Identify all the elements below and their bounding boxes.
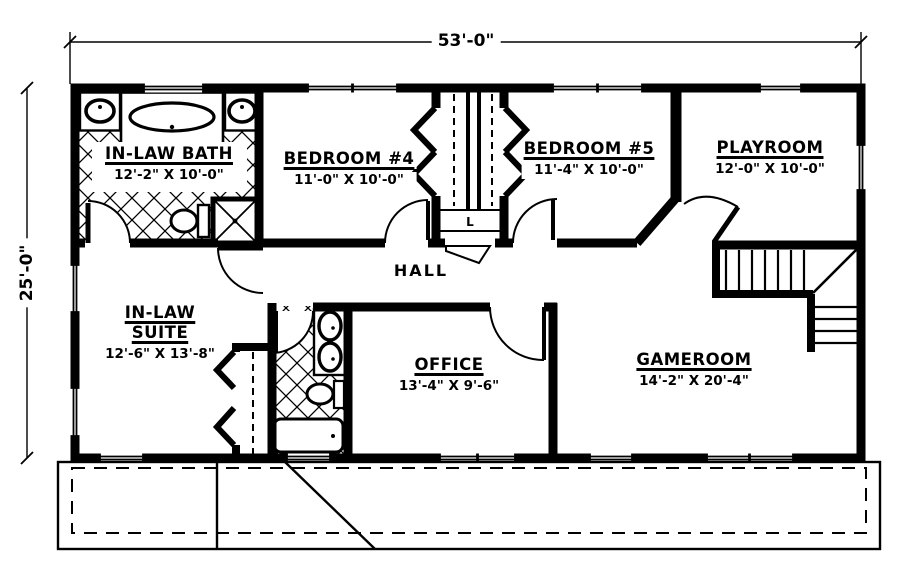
stair-treads-lower <box>815 307 857 343</box>
sink-icon <box>319 343 341 371</box>
bedroom4-door-arc <box>385 200 428 243</box>
overall-width-dimension: 53'-0" <box>432 31 501 51</box>
toilet-tank <box>198 205 209 237</box>
playroom-door-arc <box>684 197 738 207</box>
bedroom5-angled-wall <box>637 198 676 243</box>
room-dims: 11'-4" X 10'-0" <box>522 162 657 179</box>
sink-icon <box>86 100 114 122</box>
room-name: IN-LAW SUITE <box>103 303 217 343</box>
room-name: IN-LAW BATH <box>103 144 235 164</box>
room-label-playroom: PLAYROOM 12'-0" X 10'-0" <box>713 138 827 178</box>
floor-plan-page: 53'-0" 25'-0" IN-LAW BATH 12'-2" X 10'-0… <box>0 0 900 578</box>
room-dims: 13'-4" X 9'-6" <box>397 378 501 395</box>
deck-dashed-line <box>72 468 866 533</box>
bedroom4-closet-bifold <box>414 108 435 152</box>
room-label-office: OFFICE 13'-4" X 9'-6" <box>397 355 501 395</box>
office-door-arc <box>490 307 544 360</box>
room-label-bedroom-4: BEDROOM #4 11'-0" X 10'-0" <box>282 149 417 189</box>
playroom-door-leaf <box>714 207 738 242</box>
linen-text: L <box>463 215 477 229</box>
hall-text: HALL <box>392 261 450 280</box>
window <box>553 84 597 93</box>
room-label-inlaw-bath: IN-LAW BATH 12'-2" X 10'-0" <box>103 144 235 184</box>
window <box>71 388 80 436</box>
room-dims: 11'-0" X 10'-0" <box>282 172 417 189</box>
window <box>308 84 352 93</box>
toilet-icon <box>171 210 197 232</box>
deck-border <box>58 462 880 549</box>
faucet-dot <box>331 326 335 330</box>
room-name: OFFICE <box>397 355 501 375</box>
faucet-dot <box>240 105 244 109</box>
bedroom5-door-arc <box>513 199 557 243</box>
room-dims: 12'-6" X 13'-8" <box>103 346 217 363</box>
room-dims: 12'-2" X 10'-0" <box>103 167 235 184</box>
shower-drain-dot <box>233 219 238 224</box>
room-dims: 12'-0" X 10'-0" <box>713 161 827 178</box>
suite-door-arc <box>218 248 263 293</box>
toilet-icon <box>307 384 333 404</box>
room-name: PLAYROOM <box>713 138 827 158</box>
window <box>760 84 801 93</box>
sink-icon <box>319 312 341 340</box>
room-name: BEDROOM #4 <box>282 149 417 169</box>
stair-treads-upper <box>726 250 804 290</box>
window <box>598 84 642 93</box>
toilet-tank <box>334 381 344 408</box>
deck-outline <box>58 462 880 549</box>
tub-drain-dot <box>331 434 335 438</box>
tub-drain-dot <box>170 125 174 129</box>
room-name: BEDROOM #5 <box>522 139 657 159</box>
room-label-bedroom-5: BEDROOM #5 11'-4" X 10'-0" <box>522 139 657 179</box>
faucet-dot <box>331 357 335 361</box>
suite-closet-bifold <box>217 352 234 388</box>
overall-height-dimension: 25'-0" <box>17 239 37 308</box>
window <box>857 145 866 190</box>
stair-winder-line <box>813 249 857 293</box>
sink-icon <box>229 100 255 122</box>
room-dims: 14'-2" X 20'-4" <box>634 373 753 390</box>
linen-door-panel <box>446 246 490 263</box>
room-label-gameroom: GAMEROOM 14'-2" X 20'-4" <box>634 350 753 390</box>
bedroom4-closet-bifold <box>414 152 435 196</box>
floor-plan-drawing <box>0 0 900 578</box>
room-label-inlaw-suite: IN-LAW SUITE 12'-6" X 13'-8" <box>103 303 217 363</box>
room-name: GAMEROOM <box>634 350 753 370</box>
closet-divider-walls <box>468 92 479 211</box>
deck-diagonal-line <box>285 462 375 549</box>
window <box>71 265 80 312</box>
window <box>353 84 397 93</box>
staircase <box>712 245 861 352</box>
faucet-dot <box>98 105 102 109</box>
linen-closet-label: L <box>463 211 477 230</box>
window <box>144 84 203 93</box>
suite-closet-bifold <box>217 408 234 445</box>
hall-label: HALL <box>392 261 450 280</box>
